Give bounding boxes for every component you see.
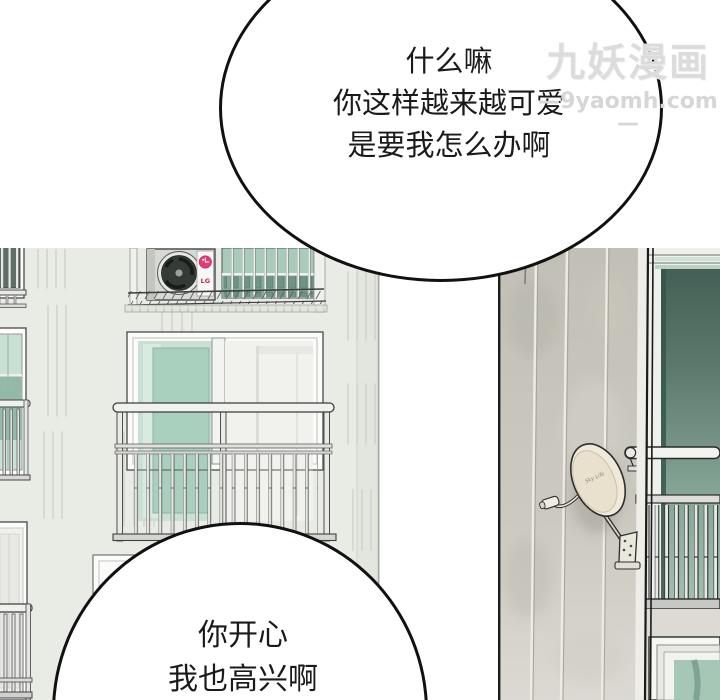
speech-bubble-bottom: 你开心 我也高兴啊	[52, 522, 428, 700]
right-building-art: Sky Life	[498, 248, 720, 700]
bubble-top-line-2: 你这样越来越可爱	[230, 82, 668, 124]
bubble-bottom-line-1: 你开心	[58, 614, 428, 658]
lg-badge: LG	[197, 251, 214, 296]
comic-page: LG	[0, 0, 720, 700]
lower-window	[649, 637, 720, 700]
edge-window-top	[0, 248, 26, 308]
equipment-shelf	[125, 289, 327, 312]
bubble-top-line-1: 什么嘛	[230, 40, 668, 82]
speech-bubble-top: 什么嘛 你这样越来越可爱 是要我怎么办啊	[219, 0, 663, 282]
speech-bubble-top-text: 什么嘛 你这样越来越可爱 是要我怎么办啊	[230, 0, 668, 166]
bubble-top-line-3: 是要我怎么办啊	[230, 124, 668, 166]
bubble-bottom-line-2: 我也高兴啊	[58, 658, 428, 700]
top-balcony: LG	[125, 248, 327, 312]
ac-brand-label: LG	[201, 277, 210, 285]
panel-right-building: Sky Life	[498, 248, 720, 700]
ac-fan	[158, 252, 201, 295]
speech-bubble-bottom-text: 你开心 我也高兴啊	[58, 525, 428, 700]
